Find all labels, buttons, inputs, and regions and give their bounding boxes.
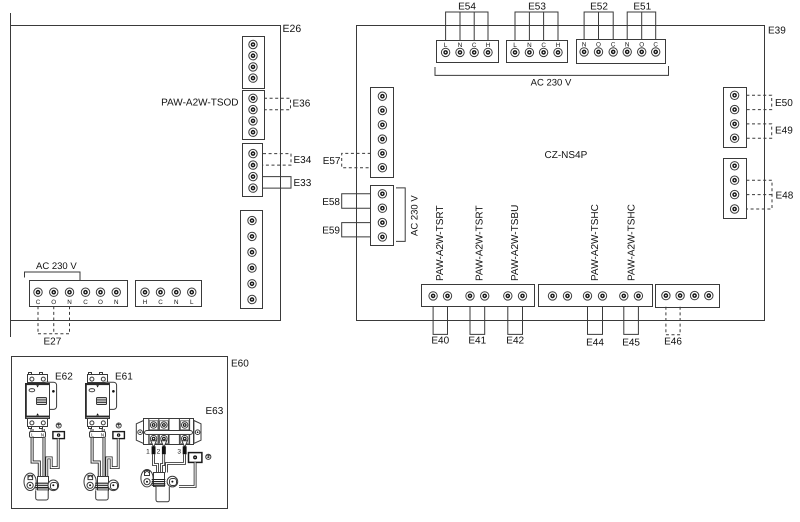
- svg-text:E45: E45: [622, 338, 640, 349]
- svg-text:E41: E41: [468, 336, 486, 347]
- svg-text:C: C: [541, 42, 546, 49]
- svg-text:PAW-A2W-TSHC: PAW-A2W-TSHC: [627, 204, 638, 281]
- svg-text:PAW-A2W-TSOD: PAW-A2W-TSOD: [161, 98, 238, 109]
- svg-text:2: 2: [157, 449, 161, 456]
- svg-text:N: N: [582, 41, 587, 48]
- svg-text:L: L: [444, 42, 448, 49]
- svg-text:E46: E46: [664, 337, 682, 348]
- svg-text:E27: E27: [44, 337, 62, 348]
- svg-text:L: L: [513, 42, 517, 49]
- svg-text:E52: E52: [590, 2, 608, 13]
- svg-text:AC 230 V: AC 230 V: [36, 261, 77, 272]
- svg-text:E61: E61: [115, 372, 133, 383]
- svg-text:E40: E40: [431, 336, 449, 347]
- svg-text:AC 230 V: AC 230 V: [531, 78, 572, 89]
- svg-text:N: N: [67, 299, 72, 306]
- svg-text:C: C: [653, 41, 658, 48]
- svg-text:O: O: [51, 299, 56, 306]
- svg-text:E44: E44: [586, 338, 604, 349]
- svg-text:CZ-NS4P: CZ-NS4P: [545, 150, 588, 161]
- svg-text:E26: E26: [283, 23, 302, 35]
- svg-text:E42: E42: [506, 336, 524, 347]
- svg-text:E51: E51: [633, 2, 651, 13]
- svg-text:3: 3: [177, 449, 181, 456]
- svg-text:C: C: [36, 299, 41, 306]
- svg-text:PAW-A2W-TSRT: PAW-A2W-TSRT: [435, 205, 446, 281]
- svg-text:1: 1: [146, 449, 150, 456]
- svg-text:O: O: [639, 41, 644, 48]
- svg-text:E34: E34: [294, 155, 312, 166]
- svg-text:E57: E57: [323, 156, 341, 167]
- svg-text:N: N: [625, 41, 630, 48]
- svg-text:C: C: [83, 299, 88, 306]
- svg-text:PAW-A2W-TSRT: PAW-A2W-TSRT: [475, 205, 486, 281]
- svg-text:H: H: [486, 42, 491, 49]
- svg-text:E48: E48: [776, 190, 794, 201]
- svg-text:E60: E60: [231, 359, 249, 370]
- svg-text:E59: E59: [322, 226, 340, 237]
- svg-text:O: O: [596, 41, 601, 48]
- svg-text:N: N: [114, 299, 119, 306]
- svg-text:PAW-A2W-TSBU: PAW-A2W-TSBU: [510, 205, 521, 281]
- svg-text:AC 230 V: AC 230 V: [410, 195, 421, 236]
- svg-text:H: H: [143, 299, 148, 306]
- svg-text:E49: E49: [775, 125, 793, 136]
- svg-text:E58: E58: [322, 197, 340, 208]
- svg-text:E62: E62: [55, 372, 73, 383]
- svg-text:E33: E33: [294, 178, 312, 189]
- svg-text:E36: E36: [293, 99, 311, 110]
- svg-text:L: L: [190, 299, 194, 306]
- svg-text:PAW-A2W-TSHC: PAW-A2W-TSHC: [590, 204, 601, 281]
- svg-text:C: C: [472, 42, 477, 49]
- svg-text:E63: E63: [206, 406, 224, 417]
- svg-text:E53: E53: [528, 2, 546, 13]
- svg-text:C: C: [158, 299, 163, 306]
- svg-text:N: N: [527, 42, 532, 49]
- svg-text:E50: E50: [775, 98, 793, 109]
- svg-text:O: O: [98, 299, 103, 306]
- svg-text:N: N: [174, 299, 179, 306]
- svg-text:N: N: [458, 42, 463, 49]
- svg-text:E39: E39: [768, 25, 786, 36]
- svg-text:E54: E54: [458, 2, 476, 13]
- svg-text:H: H: [556, 42, 561, 49]
- svg-text:C: C: [611, 41, 616, 48]
